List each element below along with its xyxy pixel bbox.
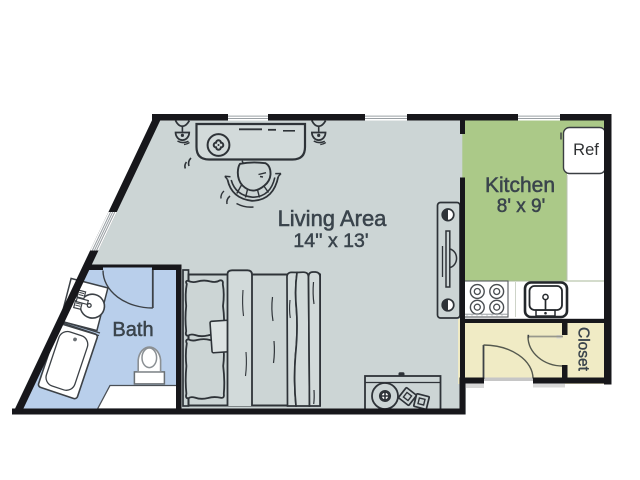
svg-text:14'' x 13': 14'' x 13' [293, 230, 368, 252]
svg-text:Living Area: Living Area [278, 206, 388, 231]
svg-text:8' x 9': 8' x 9' [497, 196, 545, 217]
svg-text:Closet: Closet [575, 327, 592, 372]
svg-text:Kitchen: Kitchen [485, 174, 555, 197]
svg-text:Bath: Bath [112, 319, 153, 341]
svg-text:Ref: Ref [573, 141, 599, 159]
